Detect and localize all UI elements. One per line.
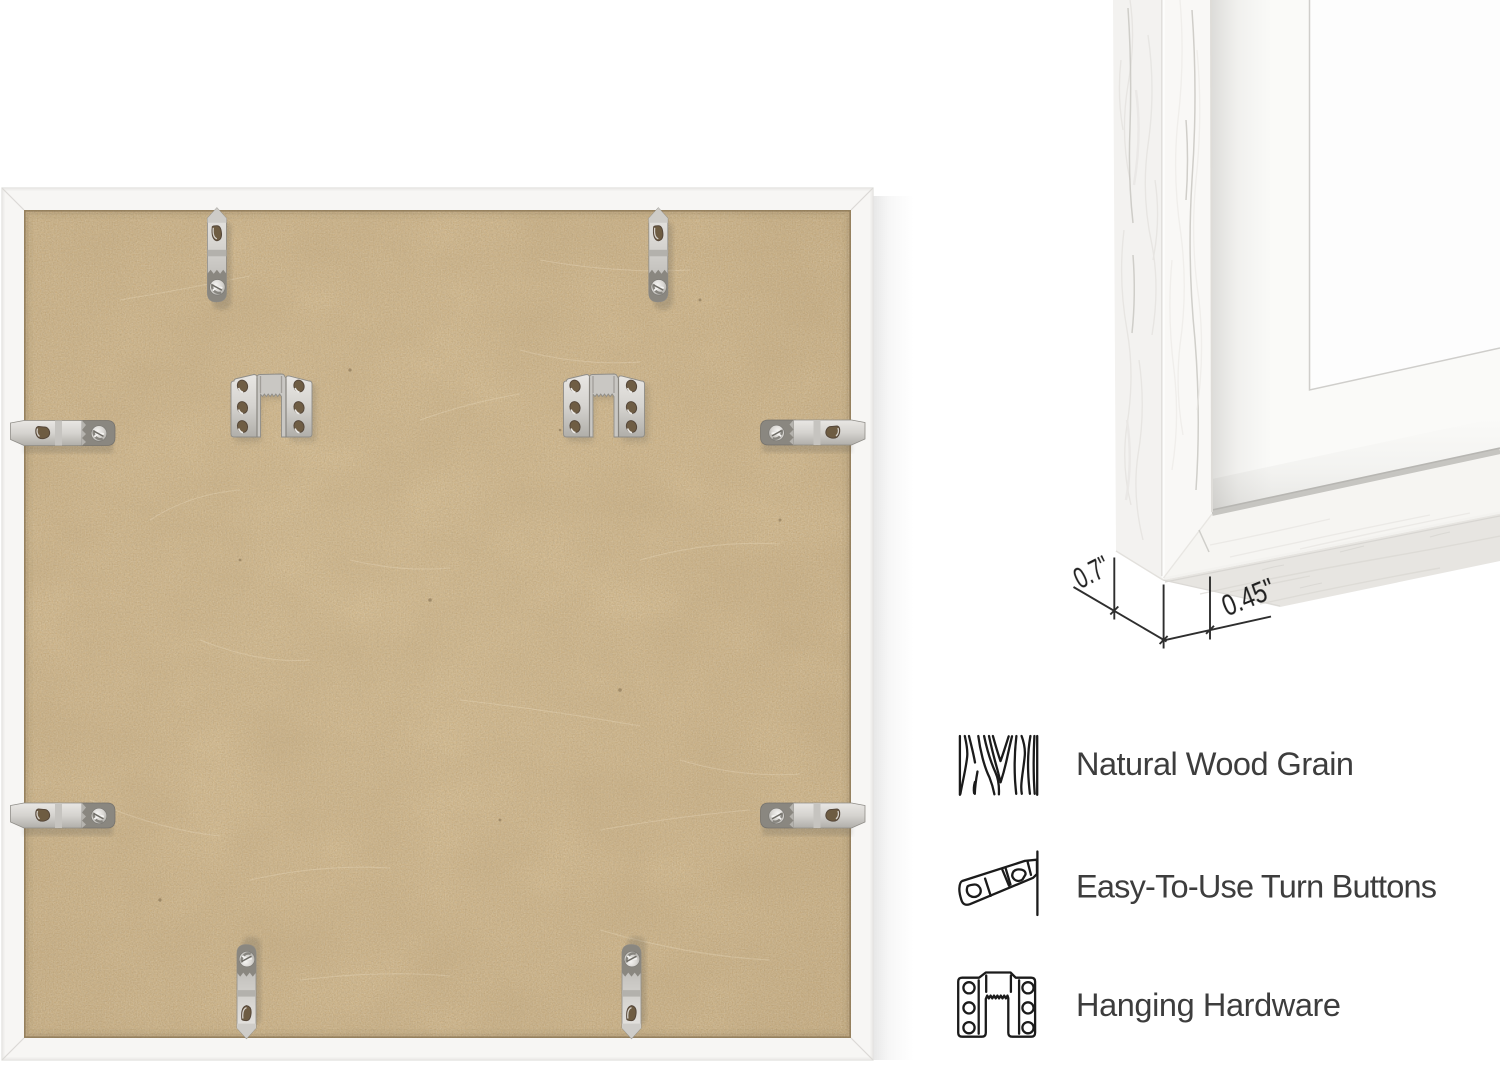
- svg-text:Hanging Hardware: Hanging Hardware: [1076, 987, 1341, 1023]
- svg-text:Natural Wood Grain: Natural Wood Grain: [1076, 746, 1354, 782]
- svg-text:Easy-To-Use Turn Buttons: Easy-To-Use Turn Buttons: [1076, 869, 1437, 905]
